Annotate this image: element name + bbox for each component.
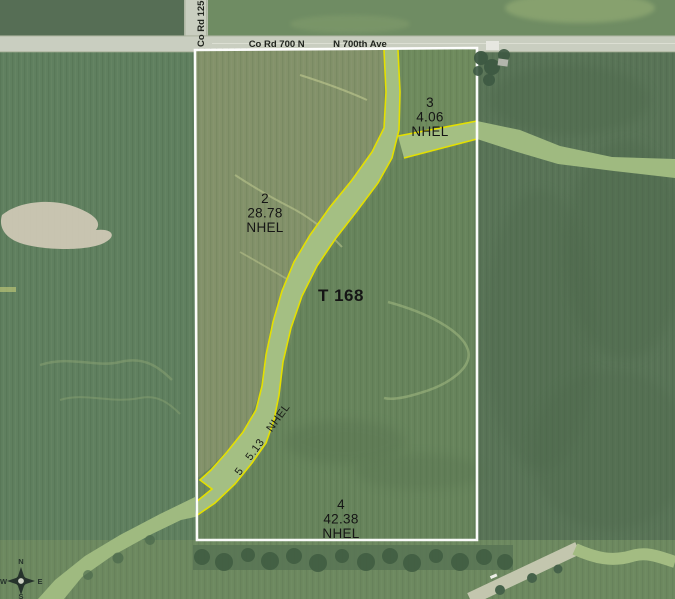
parcel-3-number: 3 — [426, 95, 434, 110]
tree — [554, 565, 563, 574]
parcel-4-acres: 42.38 — [323, 512, 358, 527]
tree — [113, 553, 124, 564]
farmstead-tree — [484, 59, 500, 75]
parcel-4-designation: NHEL — [322, 526, 359, 541]
parcel-4-number: 4 — [337, 497, 345, 512]
parcel-2-designation: NHEL — [246, 220, 283, 235]
farmstead-tree — [483, 74, 495, 86]
road-label-vertical: Co Rd 1250 — [196, 0, 207, 47]
field-top-left — [0, 0, 188, 38]
farmstead-tree — [473, 66, 483, 76]
tree — [527, 573, 537, 583]
map-canvas: Co Rd 700 N N 700th Ave Co Rd 1250 2 28.… — [0, 0, 675, 599]
field-mark — [0, 287, 16, 292]
parcel-2-number: 2 — [261, 191, 269, 206]
farmstead-building — [486, 41, 499, 50]
parcel-3-acres: 4.06 — [416, 110, 443, 125]
compass-ring — [17, 577, 25, 585]
field-dark-patch — [355, 454, 485, 490]
tree — [145, 535, 155, 545]
compass-label-n: N — [18, 557, 23, 566]
compass-label-w: W — [0, 577, 8, 586]
compass-label-s: S — [18, 592, 23, 599]
tree — [495, 585, 505, 595]
parcel-3-designation: NHEL — [411, 124, 448, 139]
field-light-patch — [290, 15, 410, 33]
tree — [83, 570, 93, 580]
farmstead-building — [497, 58, 508, 66]
parcel-2-acres: 28.78 — [247, 206, 282, 221]
aerial-field-map: Co Rd 700 N N 700th Ave Co Rd 1250 2 28.… — [0, 0, 675, 599]
field-dark-patch — [490, 65, 650, 135]
tract-label: T 168 — [318, 286, 364, 305]
compass-label-e: E — [37, 577, 42, 586]
